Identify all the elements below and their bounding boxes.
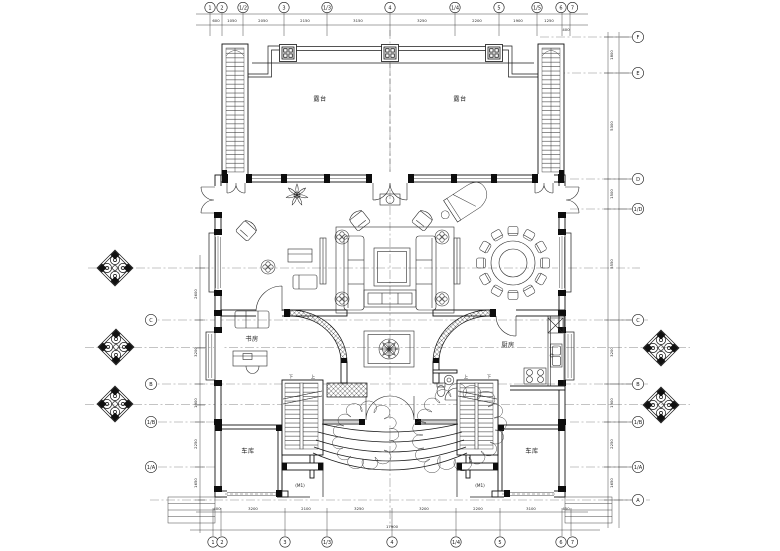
grid-bubble: 7 xyxy=(571,540,574,546)
floorplan-page: 1 2 1/2 3 1/3 4 1/4 5 1/5 6 7 600 1050 2… xyxy=(0,0,780,551)
floorplan-drawing: 1 2 1/2 3 1/3 4 1/4 5 1/5 6 7 600 1050 2… xyxy=(0,0,780,551)
grand-piano xyxy=(435,178,493,228)
grid-bubble: 1/A xyxy=(147,465,156,471)
study-label: 书房 xyxy=(245,335,258,343)
dim-text: 3250 xyxy=(354,506,364,511)
grid-bubble: 1/3 xyxy=(323,540,331,546)
grid-left: C B 1/B 1/A 2600 3200 1900 2250 1650 xyxy=(145,255,205,533)
stair-down-label: 下 xyxy=(487,374,491,380)
dim-text: 2050 xyxy=(258,18,268,23)
dim-text: 3250 xyxy=(417,18,427,23)
grid-bubble: 4 xyxy=(388,5,391,11)
grid-bubble: C xyxy=(149,318,153,324)
grid-bubble: 1/B xyxy=(634,420,643,426)
grid-bubble: 7 xyxy=(571,5,574,11)
grid-bubble: 5 xyxy=(498,540,501,546)
dim-text: 400 xyxy=(562,27,570,32)
dining-room xyxy=(435,178,550,300)
grid-bubble: 1/5 xyxy=(533,5,541,11)
paving-ornaments xyxy=(97,250,679,423)
dim-text: 3200 xyxy=(248,506,258,511)
terrace-column xyxy=(486,45,503,62)
dim-text: 2250 xyxy=(193,439,198,449)
grid-bubble: B xyxy=(636,382,640,388)
dim-text: 3200 xyxy=(609,347,614,357)
dim-text: 450 xyxy=(562,506,570,511)
grid-bottom: 1 2 3 1/3 4 1/4 5 6 7 400 3200 2100 3250… xyxy=(190,506,600,547)
grid-right: F E D 1/D C B 1/B 1/A A 1800 5300 1500 5… xyxy=(604,31,644,528)
grid-bubble: 2 xyxy=(220,540,223,546)
dim-text: 600 xyxy=(212,18,220,23)
grid-bubble: 3 xyxy=(283,540,286,546)
grid-bubble: 1 xyxy=(211,540,214,546)
dim-text: 1050 xyxy=(227,18,237,23)
terrace-column xyxy=(382,45,399,62)
dim-text: 2600 xyxy=(193,289,198,299)
dim-text: 1500 xyxy=(609,189,614,199)
garage-left-label: 车库 xyxy=(241,447,254,455)
dim-text: 2200 xyxy=(473,506,483,511)
dim-text: 400 xyxy=(213,506,221,511)
grid-bubble: 1 xyxy=(208,5,211,11)
study: 书房 xyxy=(233,311,269,374)
axis-lines xyxy=(85,30,690,527)
garage-right-label: 车库 xyxy=(525,447,538,455)
grid-bubble: B xyxy=(149,382,153,388)
dim-text: 2100 xyxy=(301,506,311,511)
kitchen: 厨房 xyxy=(501,316,564,386)
dim-text: 3200 xyxy=(193,347,198,357)
grid-top: 1 2 1/2 3 1/3 4 1/4 5 1/5 6 7 600 1050 2… xyxy=(196,2,588,36)
dim-text: 5550 xyxy=(609,259,614,269)
dim-text: 5300 xyxy=(609,121,614,131)
exterior-stairs xyxy=(222,44,564,177)
dim-text: 1650 xyxy=(609,478,614,488)
grid-bubble: 1/4 xyxy=(452,540,460,546)
terrace: 露台 露台 xyxy=(248,45,538,175)
grid-bubble: 1/3 xyxy=(323,5,331,11)
grid-bubble: A xyxy=(636,498,640,504)
grid-bubble: 1/B xyxy=(147,420,156,426)
door-tag-left: (M1) xyxy=(295,483,305,488)
dim-text: 1900 xyxy=(609,398,614,408)
grid-bubble: 1/2 xyxy=(239,5,247,11)
dim-text: 3150 xyxy=(353,18,363,23)
grid-bubble: 6 xyxy=(559,540,562,546)
grid-bubble: 3 xyxy=(282,5,285,11)
dim-text: 3200 xyxy=(419,506,429,511)
dim-total-text: 17900 xyxy=(386,524,399,529)
grid-bubble: 1/D xyxy=(634,207,643,213)
grid-bubble: 1/A xyxy=(634,465,643,471)
grid-bubble: 1/4 xyxy=(451,5,459,11)
dim-text: 1250 xyxy=(544,18,554,23)
grid-bubble: D xyxy=(636,177,640,183)
grid-bubble: C xyxy=(636,318,640,324)
grid-bubble: 5 xyxy=(497,5,500,11)
grid-bubble: 2 xyxy=(220,5,223,11)
dim-text: 1900 xyxy=(513,18,523,23)
stair-down-label: 下 xyxy=(289,374,293,380)
dim-text: 3100 xyxy=(526,506,536,511)
terrace-left-label: 露台 xyxy=(313,95,326,103)
dim-text: 1900 xyxy=(193,398,198,408)
grid-bubble: 6 xyxy=(559,5,562,11)
door-tag-right: (M1) xyxy=(475,483,485,488)
grid-bubble: E xyxy=(636,71,639,77)
kitchen-label: 厨房 xyxy=(501,341,514,349)
grid-bubble: F xyxy=(637,35,640,41)
dim-text: 2250 xyxy=(609,439,614,449)
living-room xyxy=(235,184,460,313)
dim-text: 1650 xyxy=(193,478,198,488)
shoe-cabinet xyxy=(327,383,367,397)
dim-text: 2150 xyxy=(300,18,310,23)
stair-up-label: 上 xyxy=(311,373,315,379)
dim-text: 2200 xyxy=(472,18,482,23)
stair-up-label: 上 xyxy=(464,373,468,379)
terrace-column xyxy=(280,45,297,62)
terrace-right-label: 露台 xyxy=(453,95,466,103)
dim-text: 1800 xyxy=(609,50,614,60)
grid-bubble: 4 xyxy=(390,540,393,546)
